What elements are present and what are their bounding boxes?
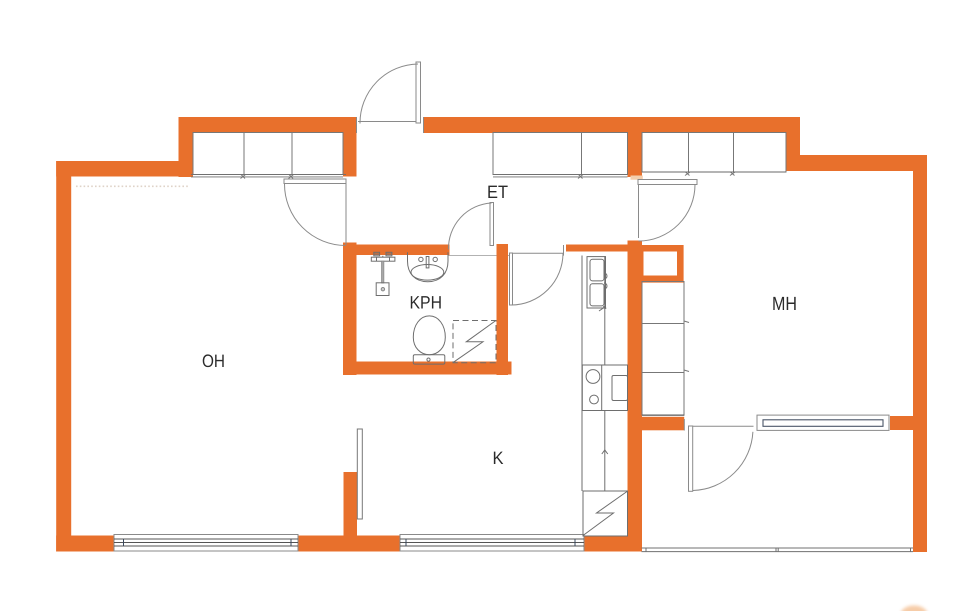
svg-text:OH: OH xyxy=(202,351,225,371)
svg-text:ET: ET xyxy=(487,182,508,202)
svg-text:MH: MH xyxy=(772,294,797,315)
svg-text:KPH: KPH xyxy=(410,293,443,313)
svg-text:K: K xyxy=(493,448,504,468)
